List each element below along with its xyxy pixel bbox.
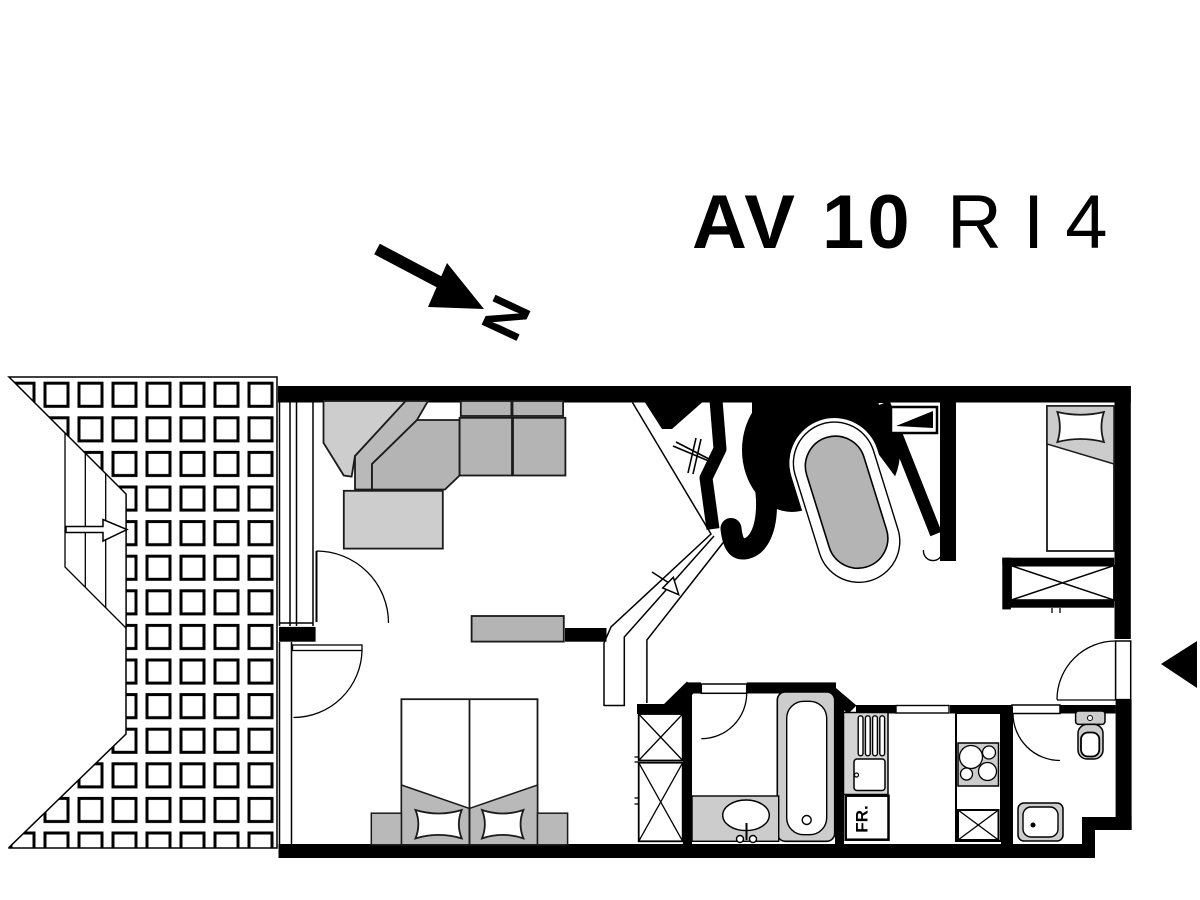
svg-text:FR.: FR.: [852, 805, 871, 832]
svg-text:R I 4: R I 4: [947, 180, 1108, 265]
svg-text:AV 10: AV 10: [692, 180, 913, 265]
